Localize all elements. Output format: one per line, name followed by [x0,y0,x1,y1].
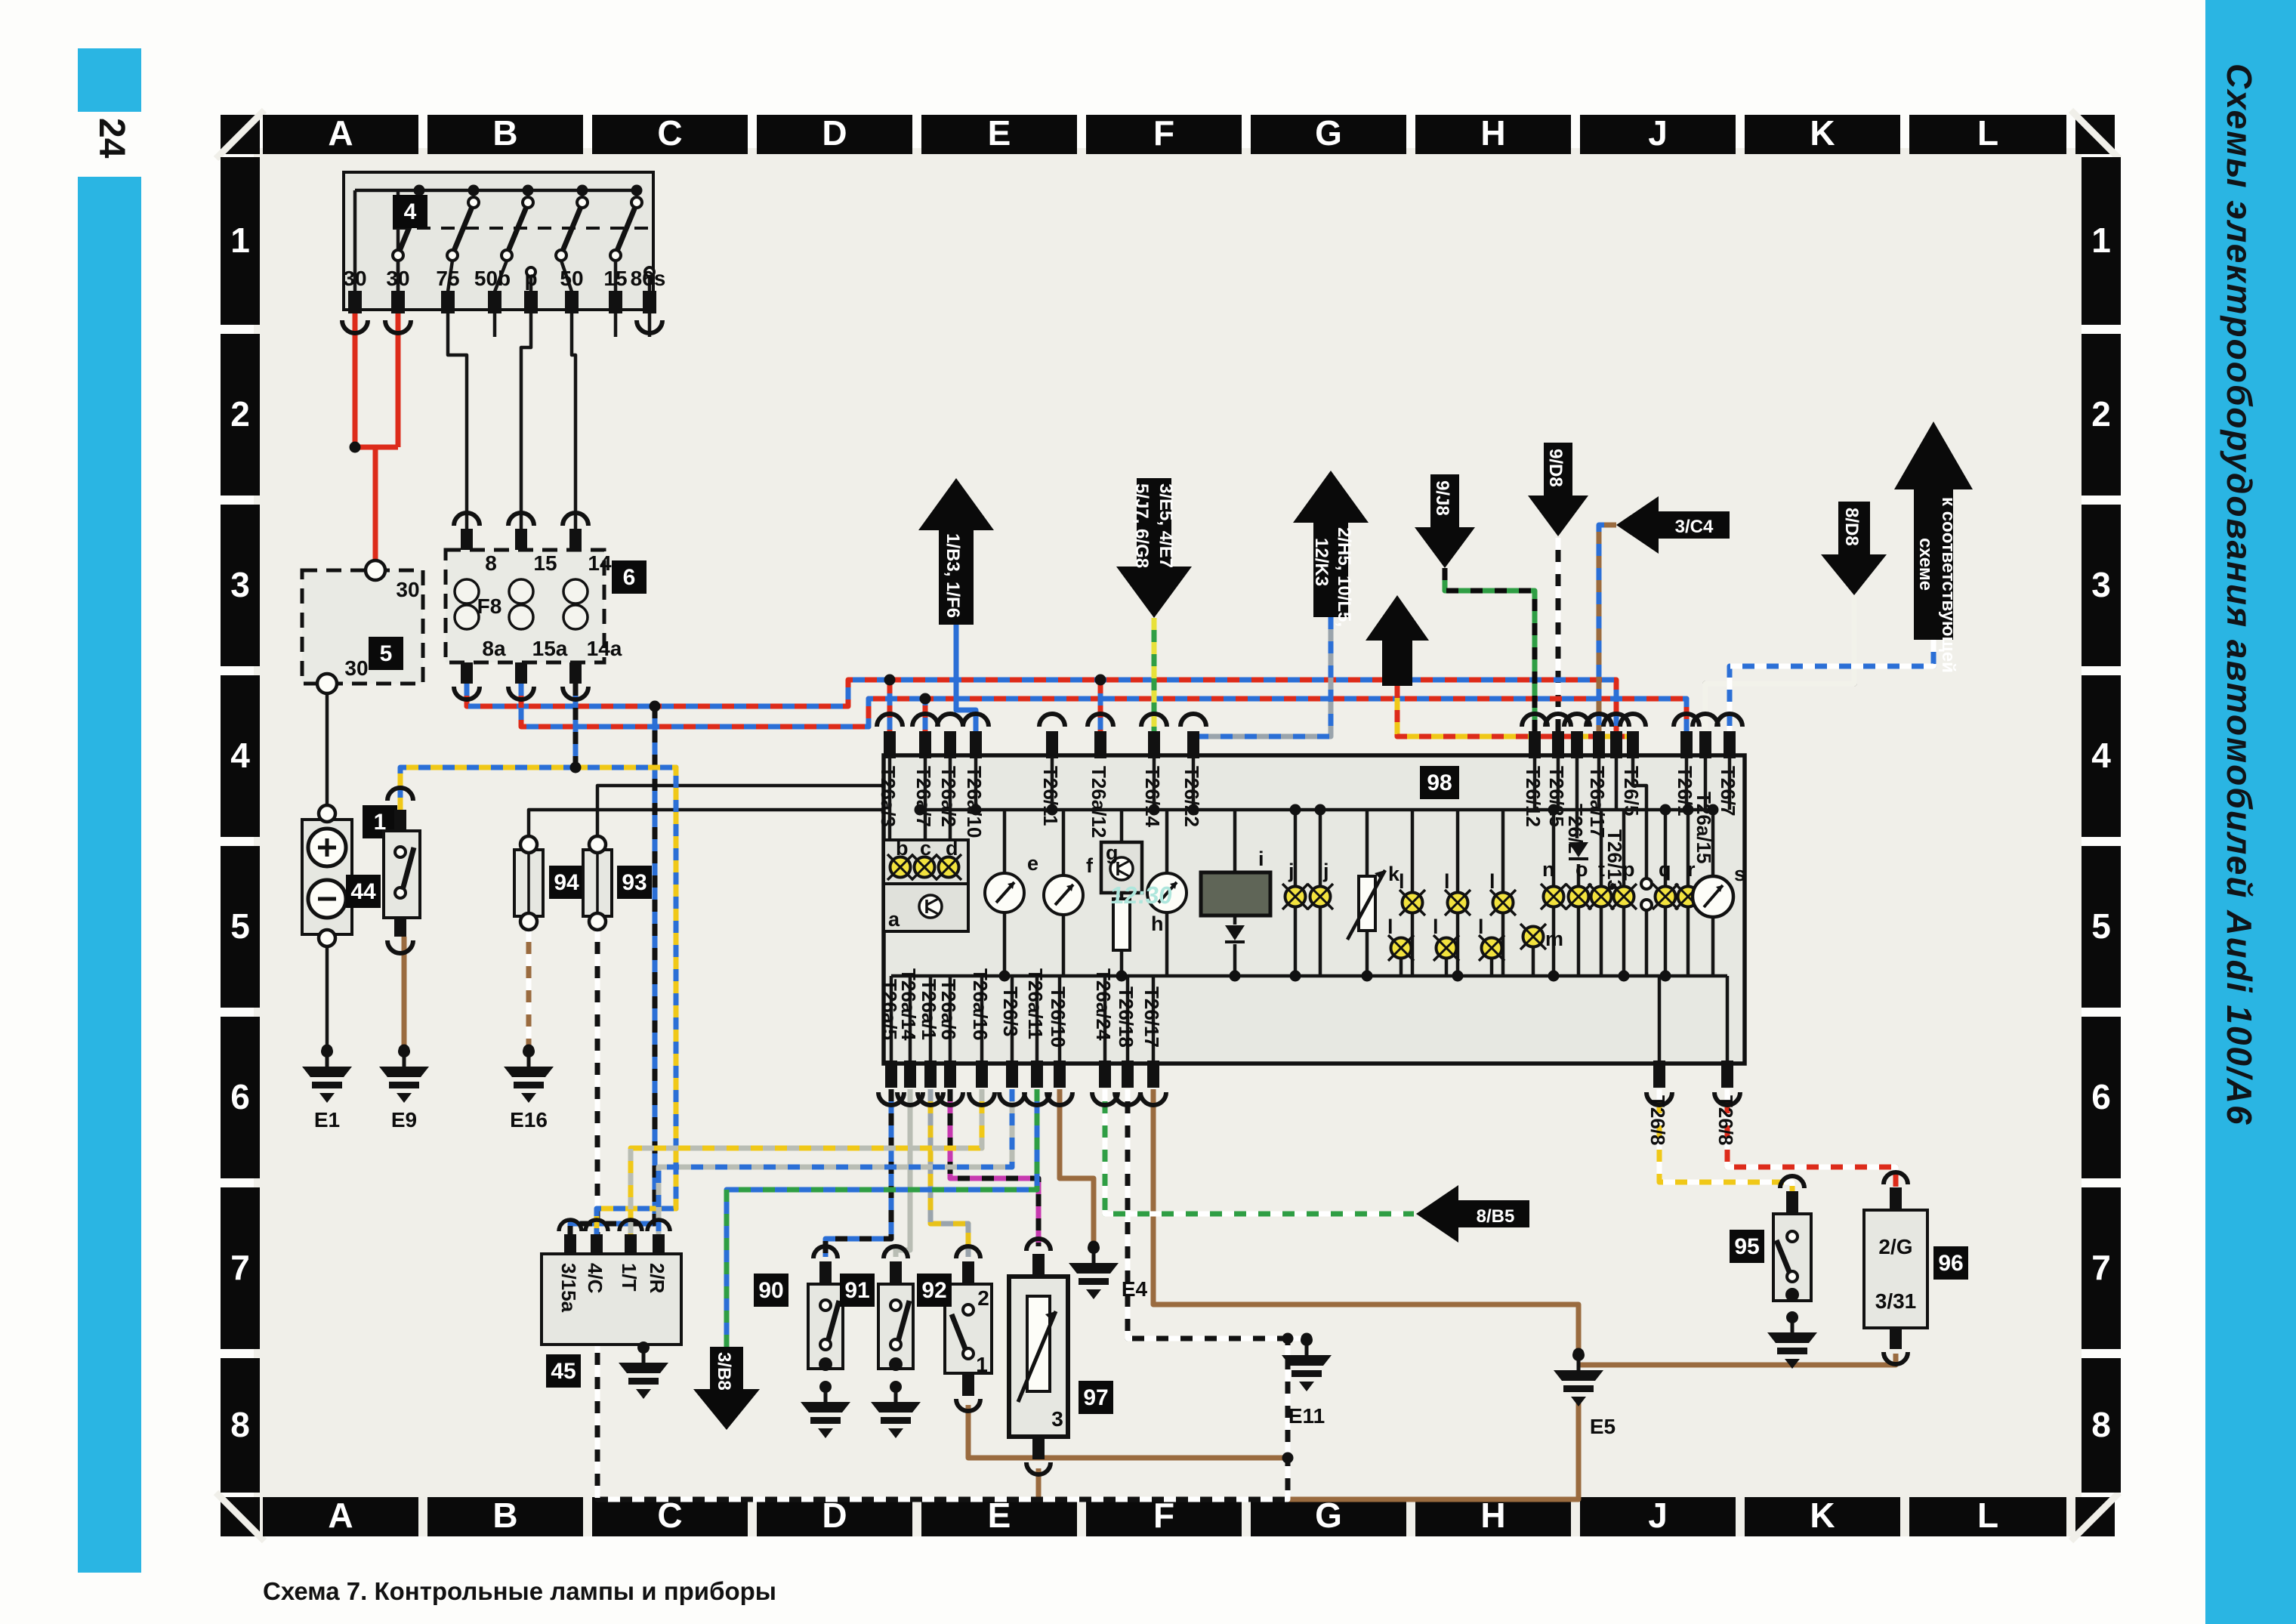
svg-text:j: j [1322,860,1329,882]
svg-text:9/J8: 9/J8 [1432,480,1452,516]
lamp-p [1611,884,1637,909]
svg-text:15: 15 [603,267,627,290]
svg-text:3/C4: 3/C4 [1675,517,1714,537]
lamp-l5 [1433,935,1459,961]
svg-text:2/G: 2/G [1878,1235,1912,1258]
svg-text:1/T: 1/T [618,1263,640,1292]
svg-text:схеме: схеме [1915,538,1936,591]
svg-text:o: o [1575,858,1588,881]
svg-text:T26a/11: T26a/11 [1024,968,1047,1039]
svg-text:6: 6 [2091,1077,2111,1116]
svg-text:4/C: 4/C [584,1263,606,1294]
svg-text:4: 4 [230,736,250,775]
svg-text:l: l [1387,915,1393,938]
svg-text:12:30: 12:30 [1109,881,1174,909]
lamp-l6 [1479,935,1504,961]
svg-text:7: 7 [230,1248,250,1287]
svg-text:7: 7 [2091,1248,2111,1287]
svg-text:J: J [1648,113,1668,153]
svg-text:E9: E9 [391,1108,417,1132]
svg-text:K: K [1810,1496,1835,1535]
svg-text:98: 98 [1427,770,1452,795]
svg-text:h: h [1151,912,1164,935]
svg-text:l: l [1489,870,1495,893]
svg-text:B: B [492,1496,517,1535]
svg-text:92: 92 [921,1278,946,1303]
svg-text:1/B3, 1/F6: 1/B3, 1/F6 [943,533,963,618]
svg-text:96: 96 [1938,1251,1963,1276]
svg-text:3/B8: 3/B8 [714,1352,734,1391]
svg-text:q: q [1659,858,1671,881]
svg-text:4: 4 [2091,736,2111,775]
svg-text:T26/17: T26/17 [1140,986,1163,1048]
svg-text:a: a [888,908,900,931]
svg-text:e: e [1027,852,1038,875]
svg-text:l: l [1478,915,1484,938]
svg-text:f: f [1086,854,1094,877]
lamp-l3 [1490,890,1516,915]
svg-text:5: 5 [380,641,393,666]
svg-text:T26/3: T26/3 [999,986,1022,1037]
lamp-l1 [1400,890,1425,915]
svg-text:1: 1 [976,1353,988,1376]
svg-text:T26a/14: T26a/14 [897,968,920,1041]
svg-text:15a: 15a [532,637,568,660]
svg-text:8a: 8a [482,637,506,660]
svg-text:3: 3 [230,565,250,604]
svg-text:T26/8: T26/8 [1714,1095,1737,1146]
svg-text:n: n [1542,858,1555,881]
svg-text:30: 30 [344,656,368,680]
svg-text:30: 30 [386,267,409,290]
svg-text:K: K [1810,113,1835,153]
svg-text:T26a/1: T26a/1 [918,979,940,1040]
svg-text:T26/8: T26/8 [1646,1095,1669,1146]
transistor-a [919,895,942,918]
svg-text:97: 97 [1083,1385,1108,1410]
svg-text:14a: 14a [587,637,622,660]
svg-text:75: 75 [436,267,459,290]
svg-text:A: A [328,113,353,153]
svg-text:93: 93 [622,870,647,895]
svg-text:C: C [657,113,682,153]
svg-text:6: 6 [230,1077,250,1116]
svg-text:l: l [1433,915,1439,938]
svg-text:c: c [920,837,931,860]
grid-rows-right: 1 2 3 4 5 6 7 8 [2082,157,2121,1493]
svg-text:90: 90 [758,1278,783,1303]
svg-text:g: g [1106,841,1119,864]
page-caption: Схема 7. Контрольные лампы и приборы [263,1577,776,1606]
svg-text:j: j [1288,860,1295,882]
lamp-l2 [1445,890,1470,915]
svg-text:L: L [1977,1496,1998,1535]
svg-text:B: B [492,113,517,153]
svg-text:14: 14 [588,551,612,575]
svg-text:E16: E16 [510,1108,548,1132]
svg-text:i: i [1258,848,1264,870]
svg-text:G: G [1315,113,1342,153]
cluster-control-unit-a: b c d a [884,837,968,931]
svg-text:E4: E4 [1122,1277,1148,1301]
svg-text:6: 6 [623,565,636,590]
scanned-wiring-diagram-page: 24 Схемы электрооборудования автомобилей… [0,0,2296,1624]
svg-text:F: F [1153,113,1174,153]
svg-text:2/H5, 10/L5,: 2/H5, 10/L5, [1334,527,1354,627]
svg-text:50b: 50b [474,267,511,290]
svg-text:r: r [1687,858,1696,881]
svg-text:d: d [946,837,958,860]
svg-text:3: 3 [1051,1407,1063,1431]
svg-text:8: 8 [2091,1405,2111,1444]
svg-text:E: E [988,113,1011,153]
svg-text:8/D8: 8/D8 [1841,508,1862,546]
svg-text:9/D8: 9/D8 [1545,449,1566,487]
svg-text:5: 5 [230,906,250,946]
svg-text:95: 95 [1734,1234,1759,1259]
svg-text:5: 5 [2091,906,2111,946]
svg-text:1: 1 [230,221,250,260]
svg-text:2: 2 [2091,394,2111,434]
svg-text:E1: E1 [314,1108,340,1132]
svg-text:50: 50 [560,267,583,290]
svg-text:15: 15 [533,551,557,575]
svg-text:91: 91 [844,1278,869,1303]
relay-block: 30 30 5 [302,560,423,693]
svg-text:3: 3 [2091,565,2111,604]
svg-text:E5: E5 [1590,1415,1616,1438]
svg-text:44: 44 [350,879,376,904]
svg-text:86s: 86s [631,267,666,290]
svg-text:45: 45 [551,1359,576,1384]
svg-text:m: m [1545,928,1563,950]
svg-text:30: 30 [343,267,366,290]
svg-text:b: b [896,837,909,860]
svg-text:L: L [1977,113,1998,153]
svg-text:J: J [1648,1496,1668,1535]
ignition-switch-block: 30 30 75 50b p 50 15 86s 4 [342,172,665,333]
grid-rows-left: 1 2 3 4 5 6 7 8 [221,157,260,1493]
gauge-f [1044,875,1083,915]
svg-text:4: 4 [404,199,417,224]
lamp-j1 [1282,884,1308,909]
svg-text:H: H [1480,113,1505,153]
wiring-diagram: A B C D E F G H J K L A B C D E F G H [0,0,2296,1624]
svg-text:p: p [1622,858,1635,881]
svg-text:l: l [1444,870,1450,893]
svg-text:2: 2 [977,1286,989,1310]
svg-text:T26a/12: T26a/12 [1088,766,1110,838]
lamp-m [1520,924,1546,949]
lamp-n [1541,884,1566,909]
lamp-q [1653,884,1678,909]
svg-text:T26/10: T26/10 [1047,986,1069,1048]
svg-text:p: p [524,267,537,290]
lamp-l4 [1388,935,1414,961]
svg-text:8/B5: 8/B5 [1477,1206,1515,1227]
svg-text:t: t [1598,858,1605,881]
svg-text:3/E5, 4/E7: 3/E5, 4/E7 [1156,483,1176,568]
svg-text:3/31: 3/31 [1875,1289,1917,1313]
svg-text:12/K3: 12/K3 [1311,538,1332,586]
svg-text:2: 2 [230,394,250,434]
svg-text:к соответствующей: к соответствующей [1938,497,1958,673]
svg-text:8: 8 [485,551,497,575]
svg-text:T26/18: T26/18 [1115,986,1137,1048]
svg-text:T26a/24: T26a/24 [1092,968,1115,1041]
svg-text:A: A [328,1496,353,1535]
grid-columns-top: A B C D E F G H J K L [263,113,2066,154]
svg-text:5/J7, 6/G8: 5/J7, 6/G8 [1131,483,1152,568]
svg-text:l: l [1399,870,1405,893]
svg-text:F8: F8 [477,594,502,618]
svg-text:2/R: 2/R [646,1263,668,1294]
svg-text:8: 8 [230,1405,250,1444]
lamp-j2 [1307,884,1333,909]
svg-text:3/15a: 3/15a [557,1263,580,1313]
gauge-e [985,873,1024,912]
svg-text:s: s [1734,863,1745,885]
lamp-t [1588,884,1614,909]
svg-text:T26a/6: T26a/6 [937,979,960,1040]
svg-text:30: 30 [396,578,419,601]
svg-text:E11: E11 [1288,1404,1325,1428]
lamp-o [1566,884,1591,909]
svg-text:T26a/16: T26a/16 [969,968,992,1040]
svg-text:1: 1 [2091,221,2111,260]
svg-text:94: 94 [554,870,579,895]
svg-text:D: D [822,113,847,153]
